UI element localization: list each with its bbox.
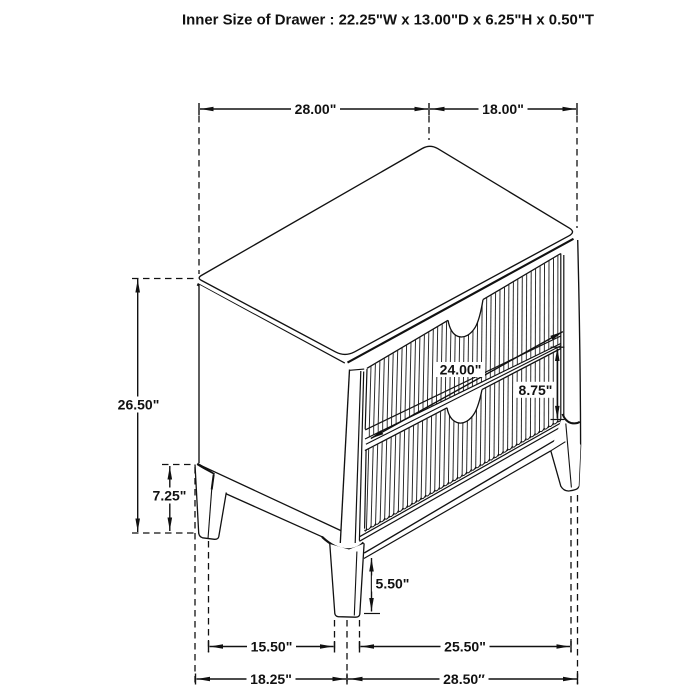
svg-text:7.25": 7.25" [153, 488, 187, 504]
svg-text:5.50": 5.50" [376, 576, 410, 592]
svg-text:28.50″: 28.50″ [443, 671, 485, 687]
svg-text:25.50": 25.50" [444, 639, 486, 655]
svg-text:24.00": 24.00" [440, 362, 482, 378]
svg-text:28.00": 28.00" [295, 101, 337, 117]
svg-text:18.00": 18.00" [482, 101, 524, 117]
svg-text:18.25": 18.25" [250, 671, 292, 687]
svg-text:26.50": 26.50" [118, 397, 160, 413]
svg-text:8.75": 8.75" [519, 382, 553, 398]
svg-text:15.50": 15.50" [251, 639, 293, 655]
svg-text:Inner Size of Drawer : 22.25"W: Inner Size of Drawer : 22.25"W x 13.00"D… [182, 12, 594, 29]
